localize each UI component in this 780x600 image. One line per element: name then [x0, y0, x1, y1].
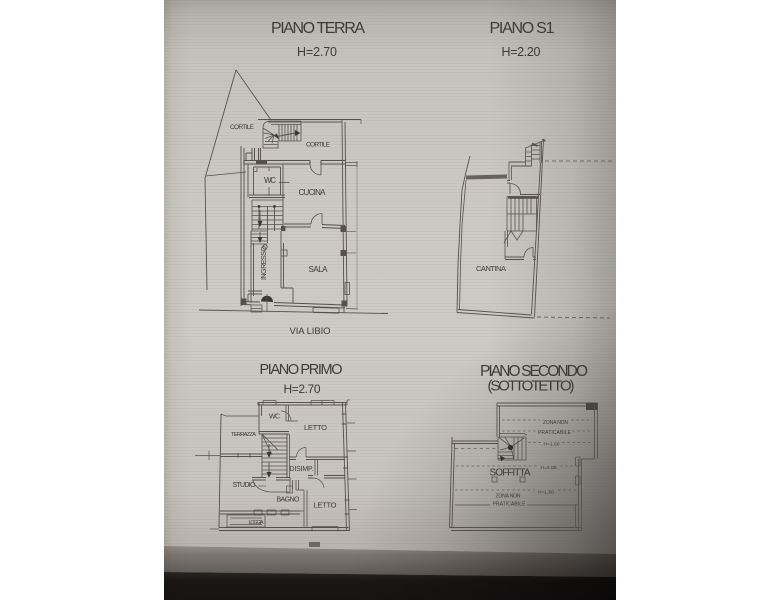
svg-text:PRATICABILE: PRATICABILE: [538, 430, 572, 436]
svg-text:STUDIO: STUDIO: [233, 482, 257, 489]
svg-text:PIANO S1: PIANO S1: [490, 20, 555, 37]
svg-text:CUCINA: CUCINA: [299, 188, 327, 197]
svg-text:H=2.20: H=2.20: [502, 45, 541, 59]
svg-text:LOGGIA: LOGGIA: [249, 520, 265, 526]
svg-text:WC: WC: [269, 414, 280, 421]
svg-text:TERRAZZA: TERRAZZA: [231, 432, 256, 438]
svg-text:H=2.70: H=2.70: [284, 382, 321, 396]
svg-text:SALA: SALA: [309, 265, 329, 274]
svg-text:WC: WC: [264, 176, 276, 185]
svg-text:BAGNO: BAGNO: [277, 497, 301, 504]
svg-text:H=2.70: H=2.70: [297, 45, 337, 59]
svg-text:PIANO TERRA: PIANO TERRA: [271, 20, 365, 37]
svg-text:PRATICABILE: PRATICABILE: [493, 502, 527, 508]
svg-text:ZONA NON: ZONA NON: [496, 494, 521, 500]
svg-text:INGRESSO: INGRESSO: [259, 246, 268, 280]
svg-text:CANTINA: CANTINA: [476, 264, 506, 273]
svg-text:DISIMP.: DISIMP.: [290, 466, 314, 473]
svg-text:H=1.50: H=1.50: [544, 442, 560, 448]
svg-text:CORTILE: CORTILE: [306, 142, 331, 149]
svg-text:H=2.08: H=2.08: [541, 465, 557, 471]
svg-text:CORTILE: CORTILE: [230, 124, 255, 131]
svg-text:H=1.50: H=1.50: [538, 490, 554, 496]
svg-text:VIA LIBIO: VIA LIBIO: [290, 326, 331, 337]
svg-text:ZONA NON: ZONA NON: [543, 420, 568, 426]
svg-text:LETTO: LETTO: [314, 501, 337, 510]
svg-text:LETTO: LETTO: [304, 423, 327, 432]
svg-text:PIANO PRIMO: PIANO PRIMO: [260, 362, 343, 378]
svg-text:(SOTTOTETTO): (SOTTOTETTO): [488, 378, 575, 395]
